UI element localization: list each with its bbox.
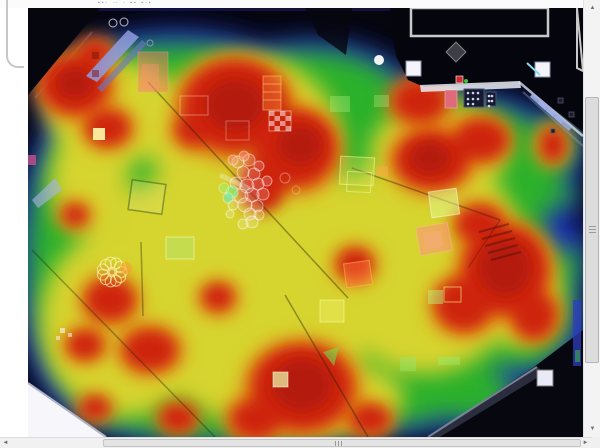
heatmap-viewport[interactable]: [28, 8, 583, 437]
toolbar-icons: ▪▪▫ ⋯ ▫ ▪▪ ▪▫▪: [98, 1, 153, 6]
scroll-down-button[interactable]: ▼: [584, 421, 600, 437]
vertical-scrollbar[interactable]: ▲ ▼: [583, 0, 600, 437]
horizontal-scrollbar[interactable]: ◄ ►: [0, 437, 592, 448]
scroll-left-button[interactable]: ◄: [0, 438, 11, 448]
scroll-up-button[interactable]: ▲: [584, 0, 600, 16]
vertical-scrollbar-thumb[interactable]: [585, 97, 599, 363]
horizontal-scrollbar-thumb[interactable]: [103, 439, 581, 447]
level-heatmap-canvas: [28, 8, 583, 437]
scroll-right-button[interactable]: ►: [580, 438, 591, 448]
thumb-grip-icon: [335, 441, 342, 446]
thumb-grip-icon: [589, 226, 596, 233]
panel-corner-remnant: [6, 0, 24, 68]
toolbar-sliver: ▪▪▫ ⋯ ▫ ▪▪ ▪▫▪: [0, 0, 600, 8]
scrollbar-corner: [592, 437, 600, 448]
